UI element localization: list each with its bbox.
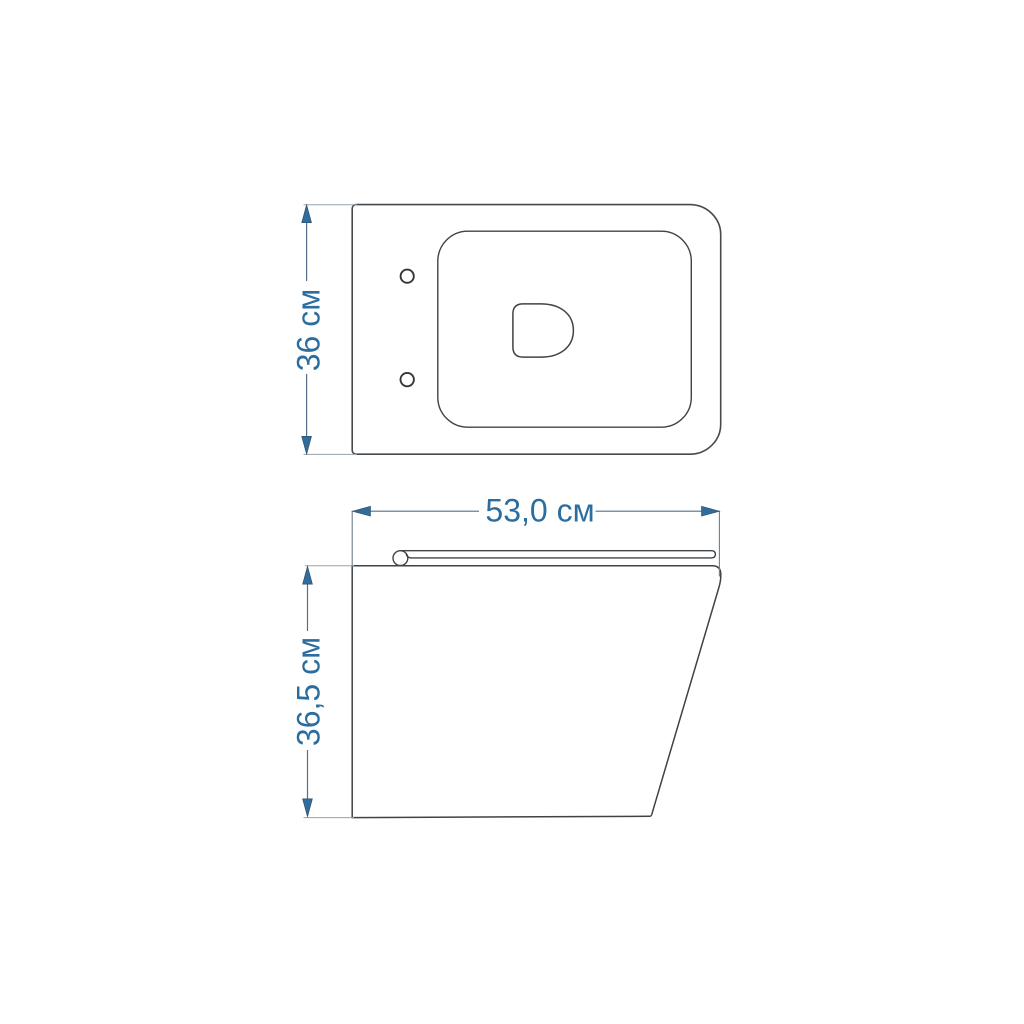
svg-text:36,5 см: 36,5 см (291, 637, 327, 746)
svg-text:36 см: 36 см (291, 289, 327, 371)
svg-text:53,0 см: 53,0 см (485, 493, 594, 529)
